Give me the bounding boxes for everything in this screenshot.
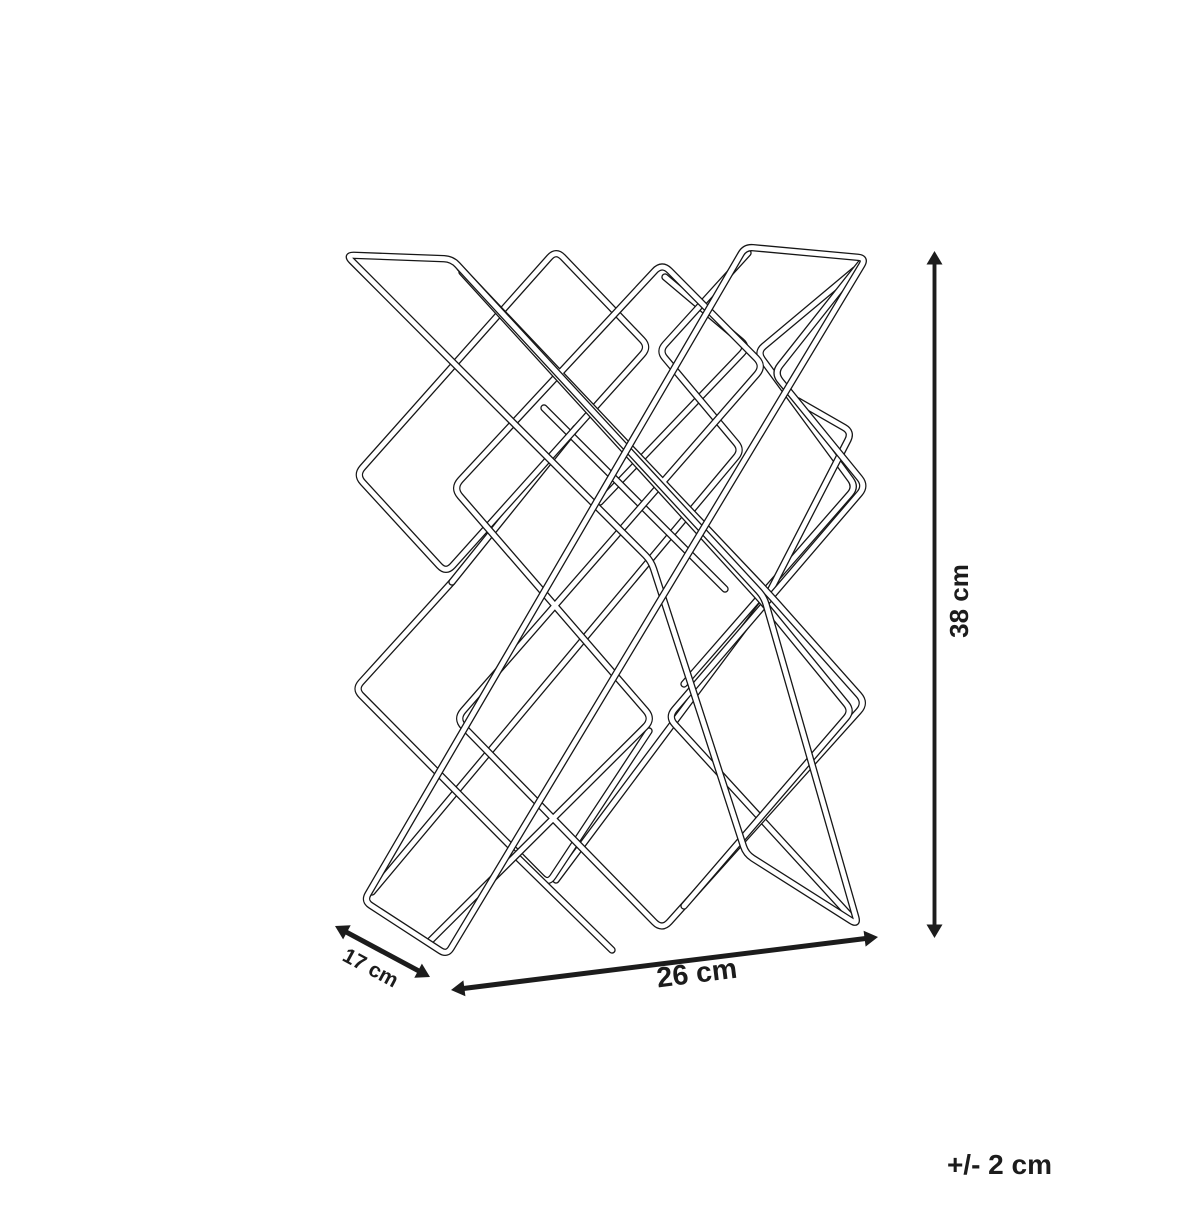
svg-text:+/- 2 cm: +/- 2 cm [947,1149,1052,1180]
svg-text:38 cm: 38 cm [944,564,974,638]
